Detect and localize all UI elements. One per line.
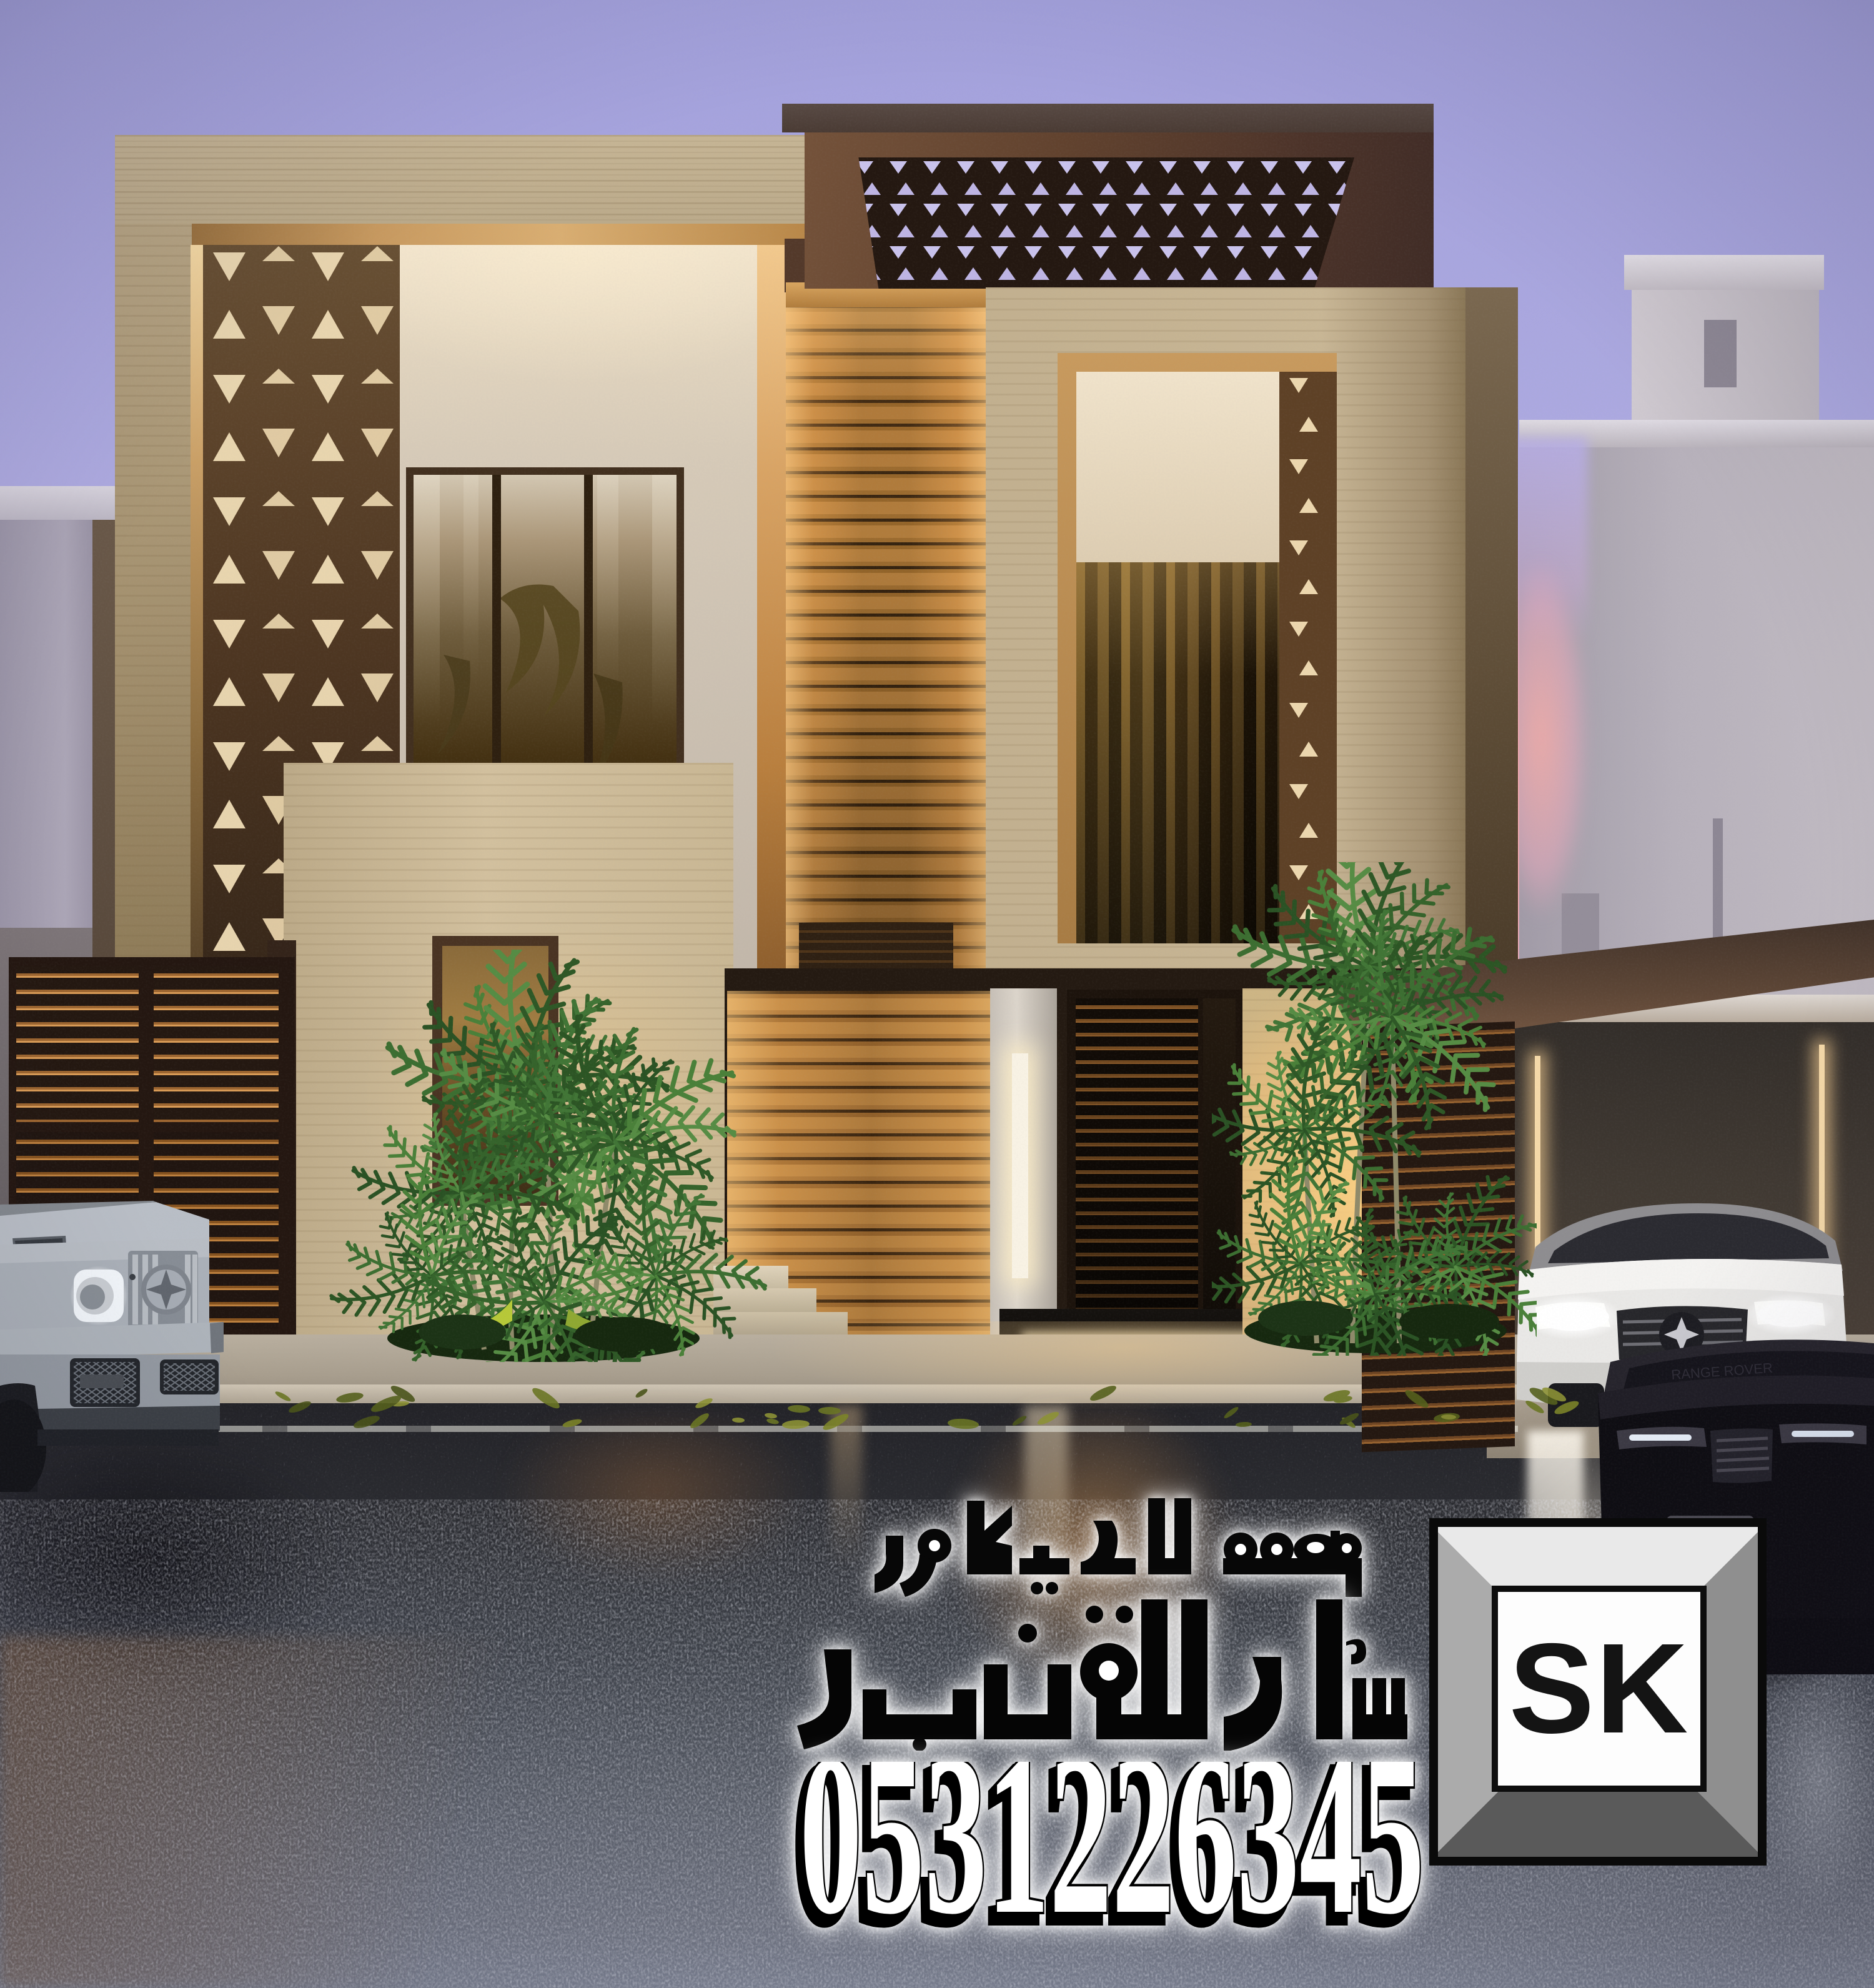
svg-text:0531226345: 0531226345 (800, 1762, 1424, 1949)
